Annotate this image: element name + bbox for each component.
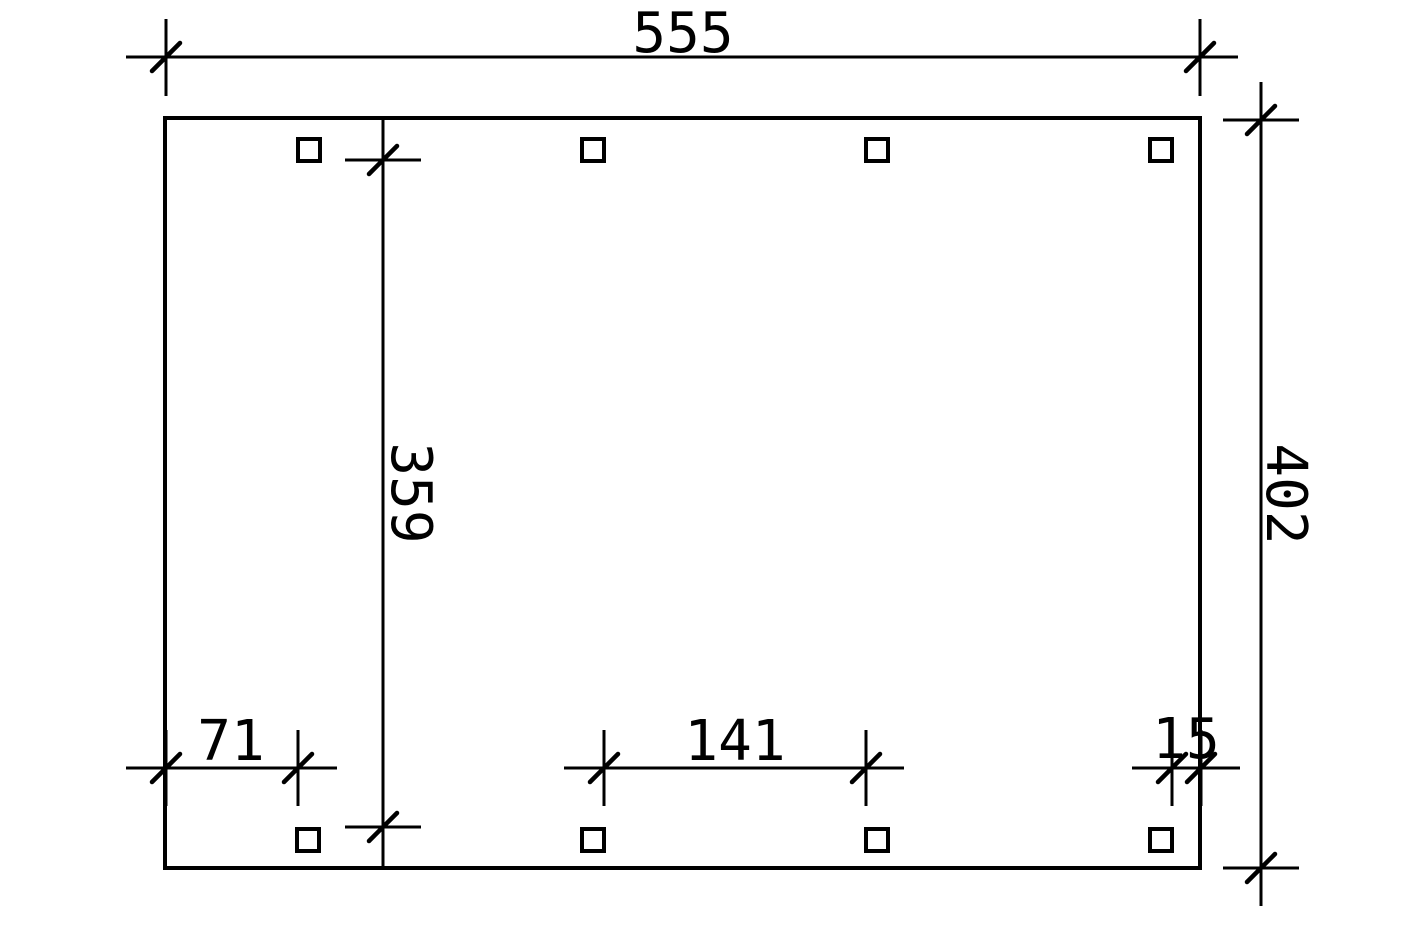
floor-plan-drawing: 555 402 359 71 xyxy=(0,0,1407,938)
dimension-label-bottom-right: 15 xyxy=(1152,707,1219,772)
post-marker-bottom-3 xyxy=(866,829,888,851)
dimension-label-top-width: 555 xyxy=(632,1,733,66)
post-marker-top-4 xyxy=(1150,139,1172,161)
post-marker-bottom-1 xyxy=(297,829,319,851)
floor-plan-outline xyxy=(165,118,1200,868)
drawing-canvas: 555 402 359 71 xyxy=(0,0,1407,938)
post-marker-top-1 xyxy=(298,139,320,161)
dimension-label-bottom-left: 71 xyxy=(197,709,264,774)
dimension-bottom-left: 71 xyxy=(126,709,337,806)
plan-rectangle xyxy=(165,118,1200,868)
dimension-right-height: 402 xyxy=(1223,82,1318,906)
post-marker-bottom-2 xyxy=(582,829,604,851)
dimension-bottom-right: 15 xyxy=(1132,707,1240,806)
post-marker-bottom-4 xyxy=(1150,829,1172,851)
post-marker-top-2 xyxy=(582,139,604,161)
dimension-inner-height: 359 xyxy=(345,146,443,841)
dimension-label-right-height: 402 xyxy=(1253,443,1318,544)
dimension-top-width: 555 xyxy=(126,1,1238,96)
dimension-label-bottom-middle: 141 xyxy=(684,709,785,774)
dimension-bottom-middle: 141 xyxy=(564,709,904,806)
dimension-label-inner-height: 359 xyxy=(378,442,443,543)
post-marker-top-3 xyxy=(866,139,888,161)
